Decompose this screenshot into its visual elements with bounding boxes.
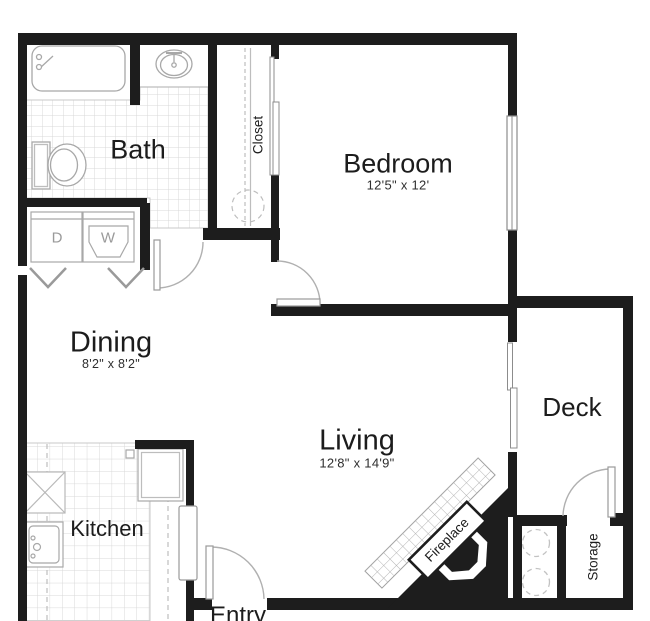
storage-door-leaf (608, 467, 615, 517)
kitchen-faucet-handle (31, 536, 35, 540)
bathtub (32, 46, 125, 91)
wall-closet-bottom (203, 228, 280, 240)
bath-door-arc (157, 242, 203, 288)
dryer-label: D (52, 231, 63, 246)
bath-door-leaf (154, 240, 160, 290)
kitchen-faucet-handle (31, 554, 35, 558)
room-label-storage: Storage (586, 533, 600, 580)
room-label-dining: Dining (70, 329, 152, 358)
wall-bedroom-left-mid (271, 175, 279, 262)
room-label-living: Living (319, 427, 395, 456)
room-dims-bedroom: 12'5" x 12' (367, 179, 430, 192)
wall-bath-bottom (18, 198, 147, 207)
wall-living-right-lower (508, 452, 517, 517)
room-label-bedroom: Bedroom (343, 151, 453, 178)
tub-faucet-knob (37, 65, 42, 70)
room-label-entry: Entry (210, 604, 266, 621)
wall-utility-storage-divider (557, 517, 566, 600)
wall-left (18, 33, 27, 621)
storage-door-arc (563, 469, 610, 516)
toilet-tank-inner (35, 145, 48, 187)
wall-kitchen-top (135, 440, 194, 449)
wall-laundry-right (140, 203, 150, 270)
tub-faucet-knob (37, 55, 42, 60)
entry-door-arc (211, 547, 264, 599)
closet-bypass-panel (273, 102, 279, 175)
wall-bath-right (208, 33, 217, 231)
wall-utility-left (513, 517, 522, 598)
bedroom-door-arc (277, 261, 320, 304)
utility-dashed-circle (523, 530, 550, 557)
wall-tub-divider (130, 33, 140, 105)
wall-right-outer (623, 296, 633, 610)
room-label-kitchen: Kitchen (70, 518, 143, 540)
utility-fixtures (523, 530, 550, 596)
wall-deck-top (513, 296, 633, 308)
utility-dashed-circle (523, 569, 550, 596)
laundry-fixtures (31, 212, 134, 262)
deck-slider-panel (511, 388, 518, 448)
wall-bedroom-left-stub (271, 33, 279, 59)
room-dims-dining: 8'2" x 8'2" (82, 358, 140, 371)
wall-gap-bifold (18, 266, 27, 275)
sink-drain (172, 63, 176, 67)
kitchen-faucet (34, 544, 41, 551)
refrigerator-inner (142, 453, 180, 498)
refrigerator-hinge (126, 450, 134, 458)
bifold-door-chevron (108, 268, 144, 287)
room-label-deck: Deck (542, 394, 601, 420)
wall-top (18, 33, 517, 45)
washer-label: W (101, 231, 115, 246)
room-dims-living: 12'8" x 14'9" (319, 457, 394, 470)
floor-plan: Bath Closet Bedroom 12'5" x 12' Dining 8… (0, 0, 650, 621)
room-label-closet: Closet (251, 116, 265, 154)
closet-dashed-circle (232, 190, 264, 222)
toilet-bowl-inner (51, 149, 78, 181)
room-label-bath: Bath (110, 137, 166, 164)
wall-bedroom-right-upper (508, 33, 517, 117)
deck-slider-panel (508, 343, 513, 390)
wall-bedroom-right-mid (508, 230, 517, 342)
bedroom-door-leaf (277, 299, 320, 306)
bifold-door-chevron (30, 268, 66, 287)
pantry-cabinet (179, 506, 197, 580)
entry-door-leaf (206, 546, 213, 599)
